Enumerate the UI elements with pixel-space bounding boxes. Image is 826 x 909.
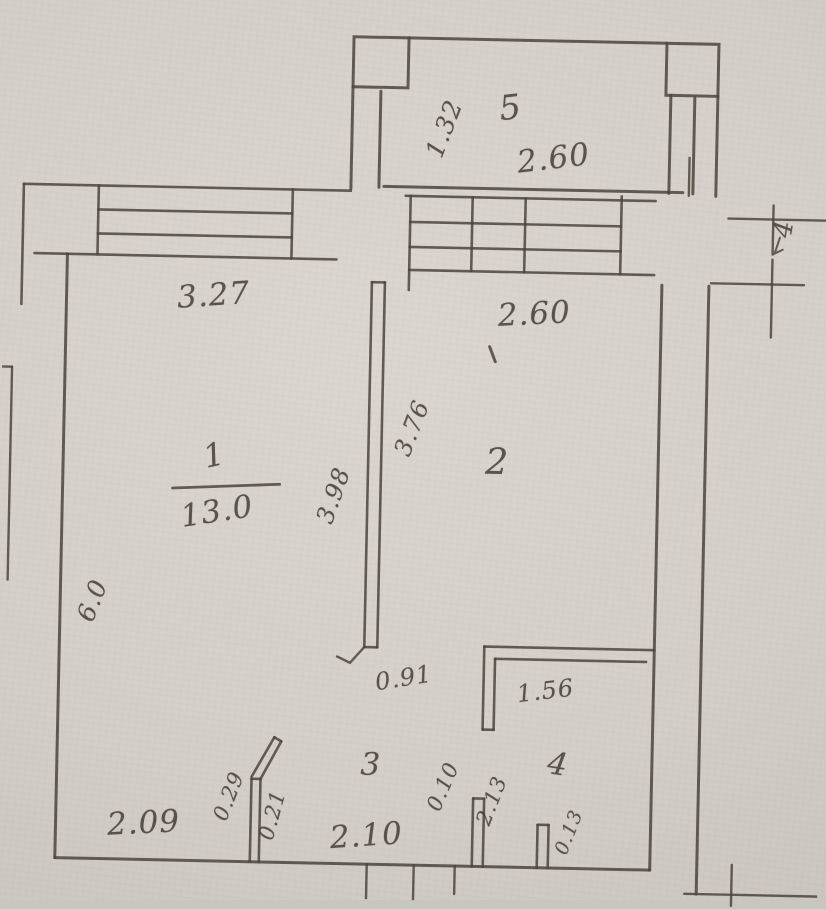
wall-1-2-dim-left: 3.98 [313, 464, 355, 526]
corner-wall-dim: 0.13 [552, 807, 586, 857]
room-3-right-dim: 2.10 [329, 818, 404, 854]
niche-width-dim: 1.56 [515, 676, 575, 707]
partition-dim-left: 0.29 [210, 769, 248, 824]
balcony-width-dim: 2.60 [515, 139, 591, 178]
room-4-number-label: 4 [545, 748, 570, 782]
room-1-number-label: 1 [200, 437, 228, 473]
partition-dim-right: 0.21 [256, 788, 290, 842]
room-1-width-dim: 3.27 [176, 278, 251, 314]
room-4-depth-dim: 2.13 [473, 773, 511, 828]
wall-1-2-dim-right: 3.76 [390, 397, 433, 459]
door-3-4-dim: 0.10 [424, 759, 463, 814]
room-1-depth-dim: 6.0 [73, 576, 112, 625]
room-2-width-dim: 2.60 [497, 297, 571, 332]
stair-side-mark: 4 [770, 218, 798, 239]
room-2-number-label: 2 [485, 445, 510, 481]
room-3-number-label: 3 [360, 750, 381, 781]
plan-labels: 52.601.323.272.60113.06.03.983.7620.911.… [0, 0, 826, 909]
balcony-depth-dim: 1.32 [422, 96, 467, 161]
room-5-number-label: 5 [497, 90, 524, 126]
door-1-2-width-dim: 0.91 [373, 662, 433, 695]
room-1-area-label: 13.0 [179, 491, 256, 533]
room-3-left-dim: 2.09 [106, 806, 180, 841]
